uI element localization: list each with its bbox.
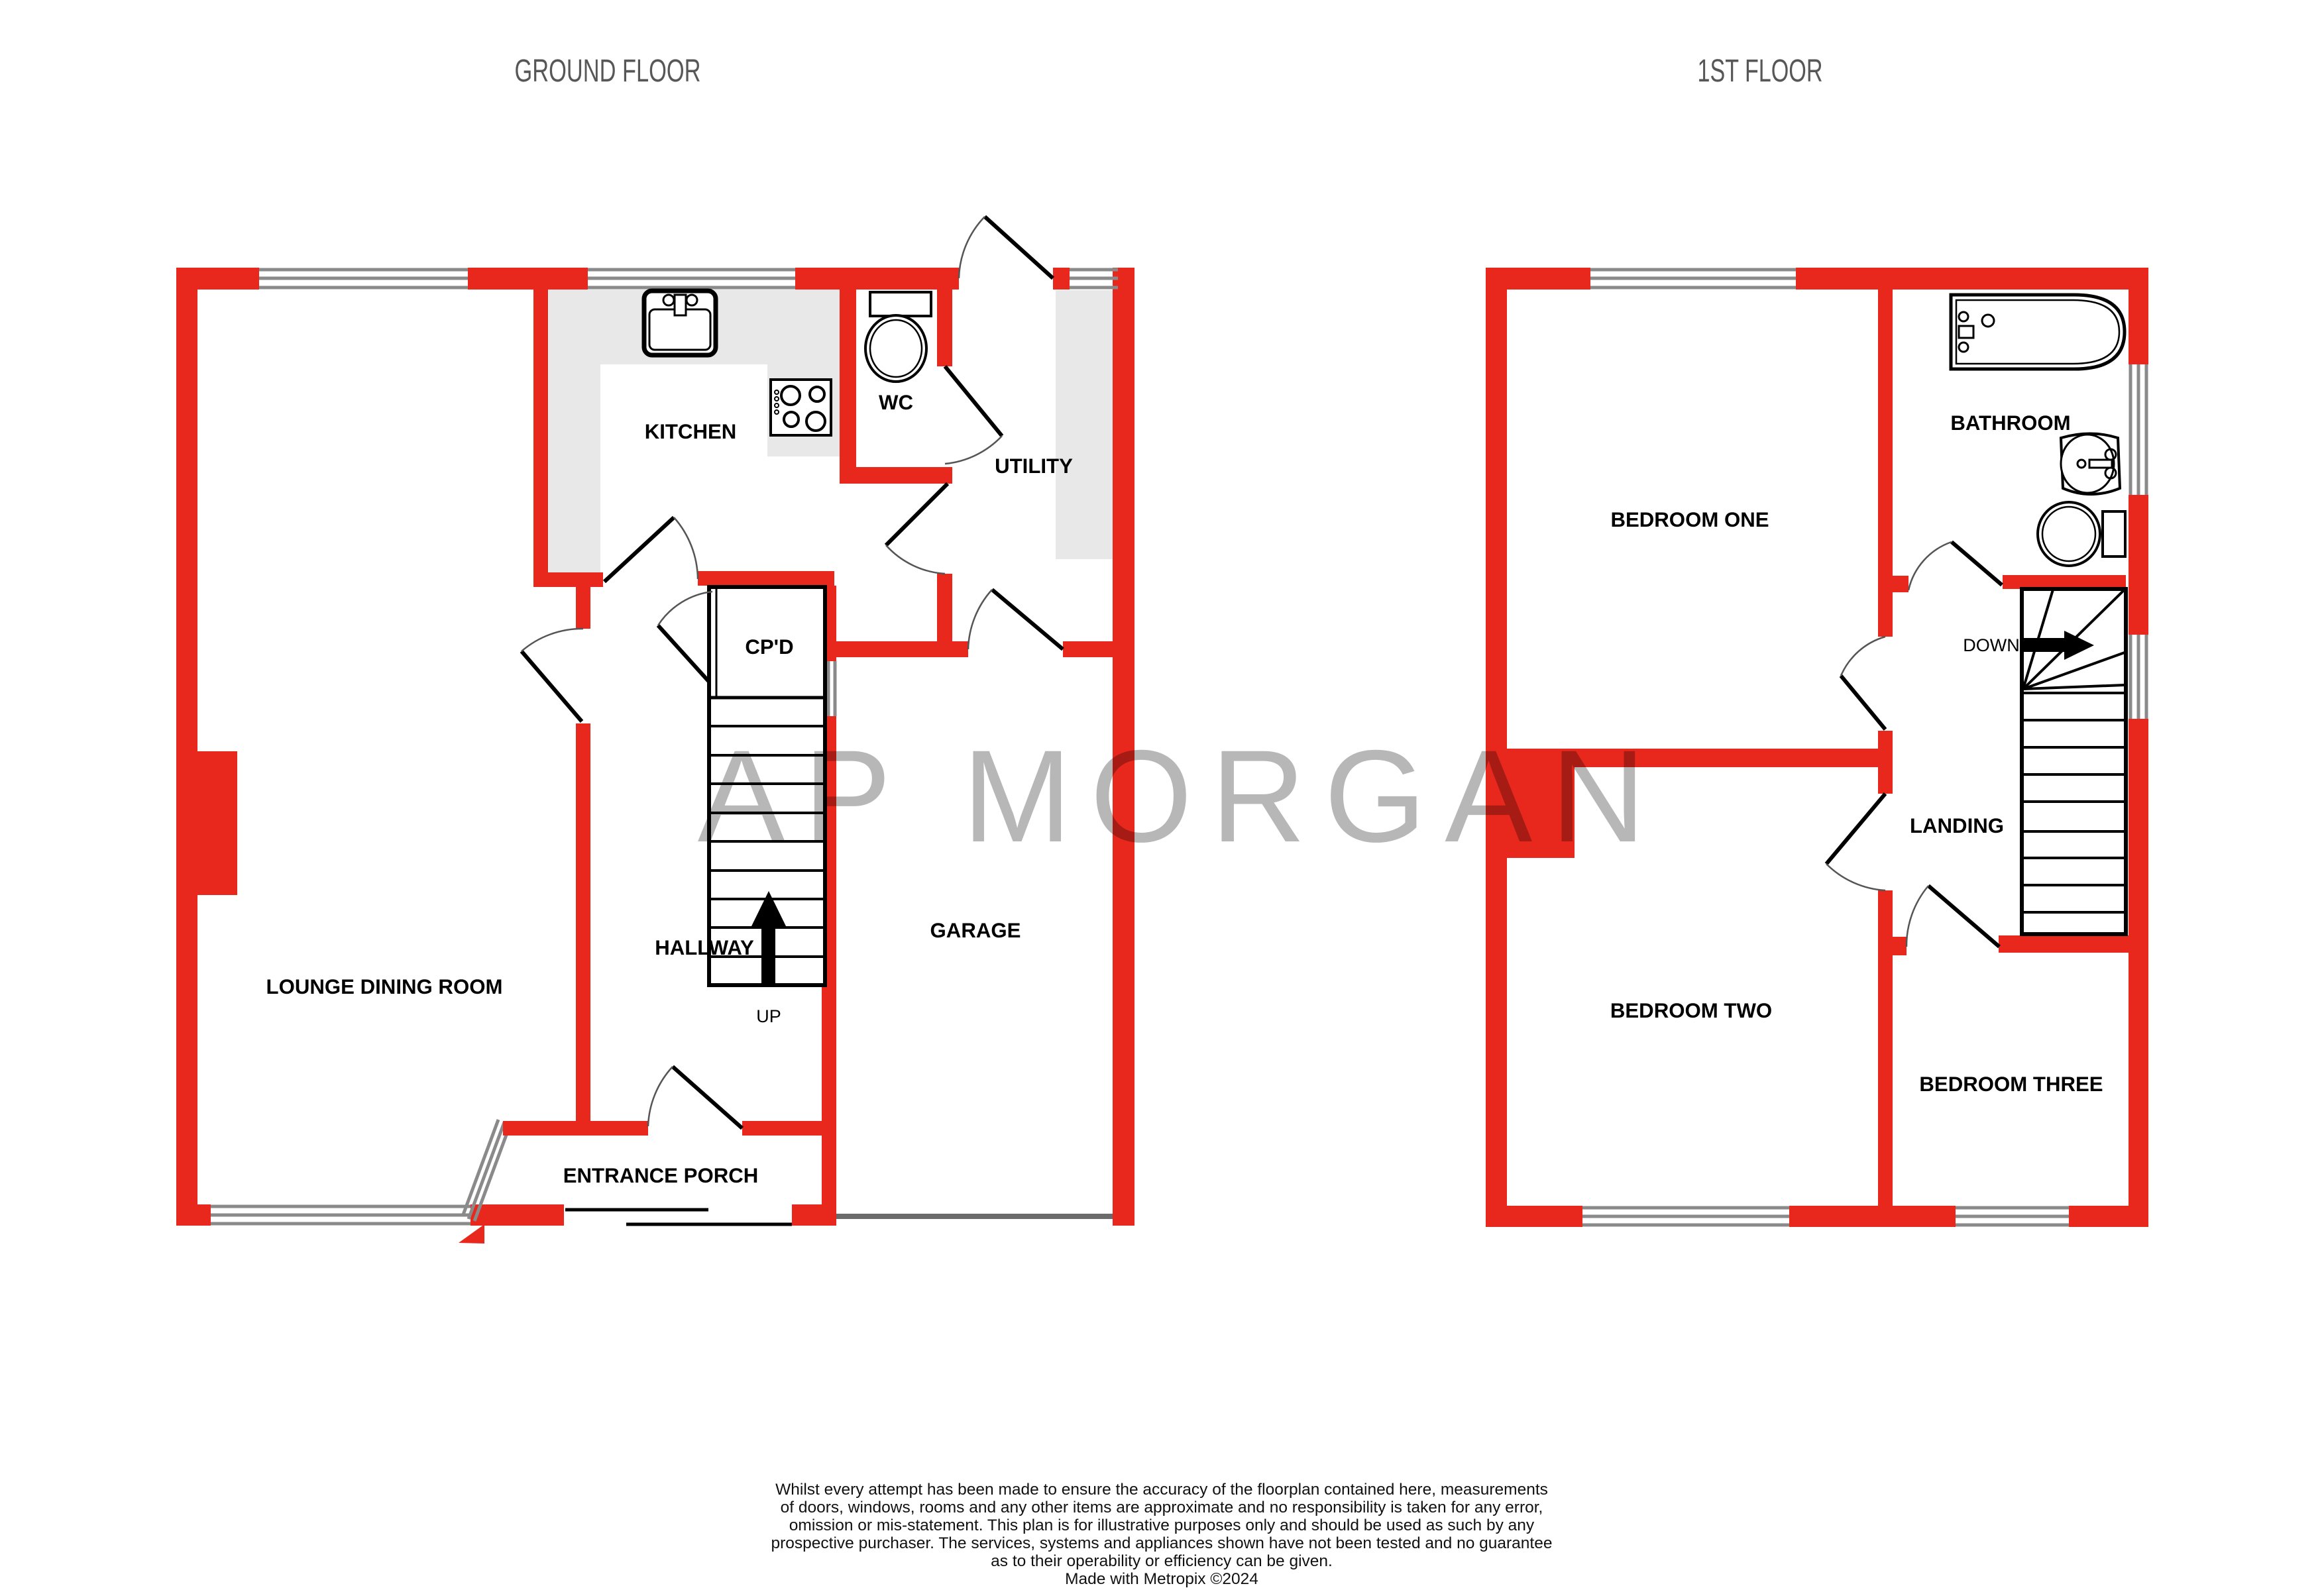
svg-text:UTILITY: UTILITY [995,454,1073,478]
svg-text:ENTRANCE PORCH: ENTRANCE PORCH [563,1164,759,1187]
svg-text:BATHROOM: BATHROOM [1950,411,2070,435]
svg-text:GROUND FLOOR: GROUND FLOOR [515,54,701,89]
svg-text:CP'D: CP'D [745,635,793,659]
svg-text:as to their operability or eff: as to their operability or efficiency ca… [991,1552,1333,1570]
svg-text:AP MORGAN: AP MORGAN [698,723,1665,869]
svg-text:BEDROOM ONE: BEDROOM ONE [1610,508,1769,531]
svg-text:GARAGE: GARAGE [930,919,1021,942]
svg-text:UP: UP [756,1006,781,1026]
svg-text:Made with Metropix ©2024: Made with Metropix ©2024 [1065,1570,1258,1588]
svg-text:1ST FLOOR: 1ST FLOOR [1698,54,1823,89]
svg-text:prospective purchaser. The ser: prospective purchaser. The services, sys… [771,1534,1552,1552]
svg-text:BEDROOM TWO: BEDROOM TWO [1610,999,1772,1022]
svg-text:omission or mis-statement. Thi: omission or mis-statement. This plan is … [789,1516,1535,1534]
svg-text:HALLWAY: HALLWAY [655,936,754,959]
svg-text:WC: WC [879,391,913,414]
svg-text:DOWN: DOWN [1963,635,2019,655]
svg-text:of doors, windows, rooms and a: of doors, windows, rooms and any other i… [781,1499,1543,1516]
svg-text:BEDROOM THREE: BEDROOM THREE [1919,1073,2103,1096]
svg-text:LANDING: LANDING [1910,814,2004,837]
svg-text:LOUNGE DINING ROOM: LOUNGE DINING ROOM [266,975,503,998]
svg-text:Whilst every attempt has been: Whilst every attempt has been made to en… [775,1481,1548,1499]
svg-text:KITCHEN: KITCHEN [645,420,737,443]
